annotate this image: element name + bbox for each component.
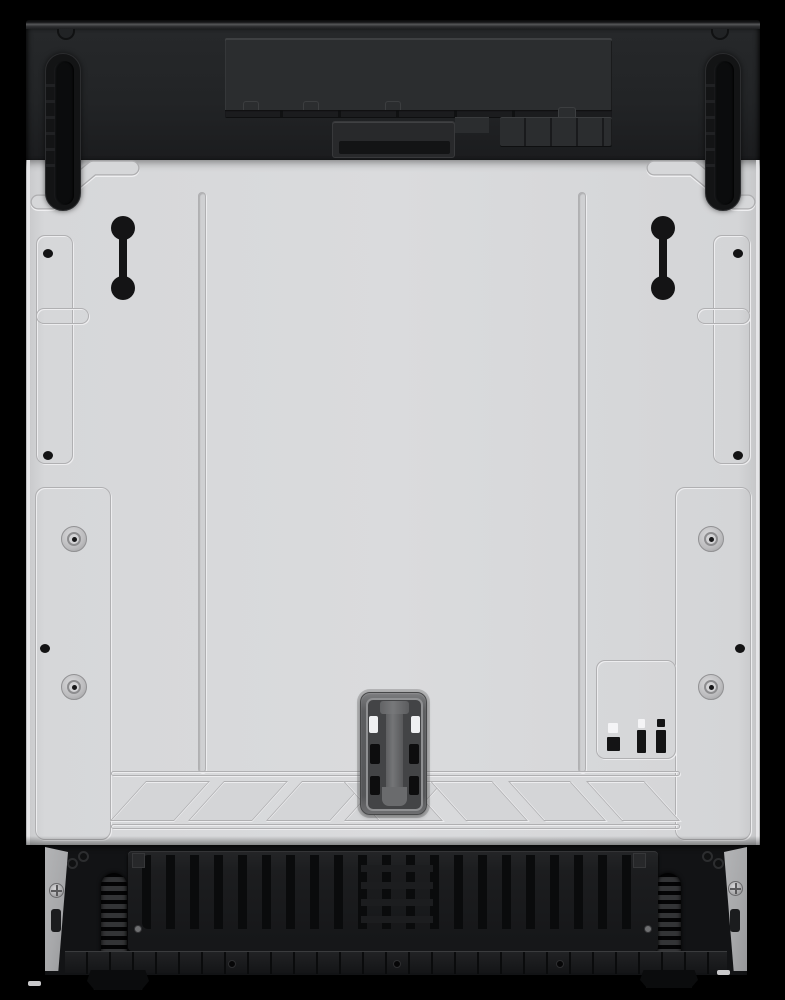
latch-slot-black [409,744,419,764]
side-capsule-groove-right [697,308,750,324]
recess-step-extension [500,117,612,146]
hinge-pin-ring [67,858,78,869]
wedge-screw-right [728,881,743,896]
latch-slot-white [411,716,420,733]
door-panel [26,160,760,845]
dishwasher-front [26,20,760,993]
mounting-screw [61,674,87,700]
embossed-zigzag-grooves [26,160,760,220]
side-hole [43,249,53,258]
hinge-ribs-right [706,84,715,180]
recess-step-small-box [455,117,489,133]
door-bottom-shadow [26,836,760,845]
side-hole [733,451,743,460]
marking-black-bar [656,730,666,753]
screw-center [72,537,77,542]
screw-center [72,685,77,690]
latch-cross-top [380,701,409,714]
kickplate-base [45,845,747,975]
controls-recess-panel [225,38,612,117]
center-recess-box [332,121,455,158]
hatch-groove-bottom [111,824,680,829]
marking-black-dot [657,719,665,727]
mounting-keyhole-slot-left [111,216,135,300]
control-band [26,20,760,160]
door-edge-highlight-left [27,160,30,845]
wedge-screw-left [49,883,64,898]
plate-screw [644,925,652,933]
side-hole [735,644,745,653]
door-seam-left [198,192,206,773]
screw-center [709,685,714,690]
plate-bracket [633,853,646,868]
foot-highlight-left [28,981,41,986]
marking-black-square [607,737,620,751]
rail-hole [228,960,236,968]
top-edge-trim [26,20,760,29]
recess-tab [385,101,401,110]
screw-center [709,537,714,542]
leveling-foot-left [87,970,149,990]
side-hole [43,451,53,460]
ribbed-vent-plate [128,851,658,951]
hinge-slider-left [54,61,74,205]
door-edge-highlight-right [756,160,759,845]
recess-tab [243,101,259,110]
latch-slot-black [409,776,419,795]
center-recess-slot [339,141,450,154]
marking-black-bar [637,730,646,753]
keyhole-bottom-circle [651,276,675,300]
side-emboss-strip-right [713,235,750,464]
wedge-slot-left [51,909,61,932]
side-hole [733,249,743,258]
rail-hole [393,960,401,968]
wedge-slot-right [730,909,740,932]
hinge-track-left [45,53,81,211]
door-latch-receiver [360,692,427,815]
vent-ribs-segmented [361,855,433,929]
leveling-foot-right [640,970,698,988]
hinge-pin-ring [78,851,89,862]
latch-slot-black [370,776,380,795]
mounting-screw [61,526,87,552]
recess-tab [303,101,319,110]
side-hole [40,644,50,653]
marking-white-square [608,723,618,733]
side-emboss-strip-left [36,235,73,464]
keyhole-bottom-circle [111,276,135,300]
door-seam-right [578,192,586,773]
hinge-track-right [705,53,741,211]
marking-white-nub [638,719,645,728]
mounting-keyhole-slot-right [651,216,675,300]
foot-highlight-right [717,970,730,975]
latch-slot-black [370,744,380,764]
plate-screw [134,925,142,933]
hinge-pin-ring [713,858,724,869]
hinge-ribs-left [46,84,55,180]
rail-hole [556,960,564,968]
latch-tongue [382,787,407,806]
hinge-slider-right [714,61,734,205]
side-capsule-groove-left [36,308,89,324]
hinge-pin-ring [702,851,713,862]
mounting-screw [698,674,724,700]
bottom-support-rail [65,951,727,973]
product-photo-stage [0,0,785,1000]
recess-bottom-groove [225,110,612,117]
plate-bracket [132,853,145,868]
latch-slot-white [369,716,378,733]
mounting-screw [698,526,724,552]
